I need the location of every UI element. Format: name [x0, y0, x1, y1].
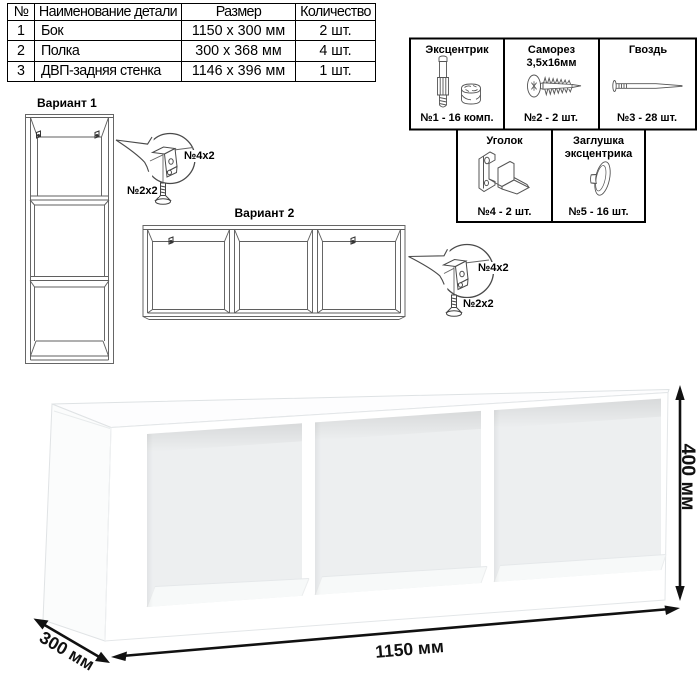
- svg-text:1150 мм: 1150 мм: [374, 636, 444, 662]
- svg-text:300 мм: 300 мм: [36, 627, 98, 674]
- svg-text:400 мм: 400 мм: [677, 444, 699, 511]
